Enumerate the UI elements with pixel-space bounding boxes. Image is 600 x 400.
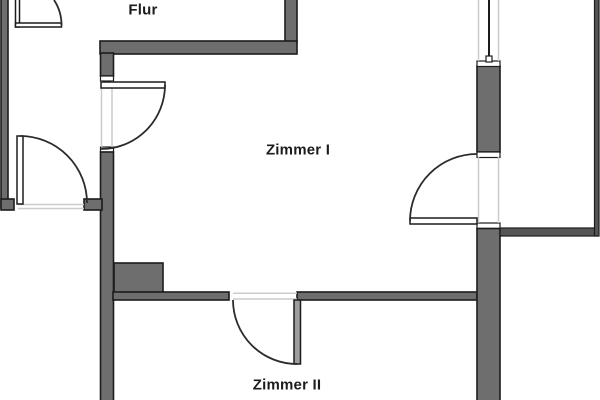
window-top-right [479, 0, 499, 62]
wall-cap [101, 76, 114, 81]
right-exterior-wall [477, 61, 500, 400]
floor-plan-drawing [0, 0, 600, 400]
door-leaf [410, 218, 477, 224]
room-label-zimmer-2: Zimmer II [253, 377, 322, 394]
balcony-right-wall [595, 0, 600, 236]
door-leaf [294, 300, 301, 364]
door-swing-arc [410, 154, 477, 221]
opening-zimmer2 [233, 293, 297, 299]
door-swing-arc [54, 0, 62, 25]
door-leaf [101, 82, 165, 88]
door-left-room [17, 136, 87, 204]
wall-segment [1, 0, 8, 208]
wall-segment [100, 41, 297, 54]
room-label-zimmer-1: Zimmer I [266, 142, 330, 159]
door-zimmer1 [410, 154, 477, 224]
balcony-bottom-wall [500, 228, 598, 236]
wall-segment [114, 263, 163, 293]
opening-left-bottom [18, 205, 84, 209]
door-swing-arc [101, 85, 165, 149]
door-zimmer2 [233, 300, 301, 364]
opening-zimmer1 [479, 157, 499, 223]
door-opening-lines [18, 81, 499, 299]
wall-cap [477, 152, 500, 158]
opening-flur [102, 81, 113, 147]
wall-segment [101, 53, 114, 76]
floor-plan: Flur Zimmer I Zimmer II [0, 0, 600, 400]
left-exterior-wall [1, 0, 14, 210]
wall-segment [477, 66, 500, 152]
room-label-flur: Flur [128, 2, 157, 19]
door-swing-arc [20, 136, 87, 203]
window-handle [486, 56, 492, 62]
wall-segment [297, 292, 477, 300]
wall-end-jamb [1, 199, 14, 210]
balcony-walls [500, 0, 599, 236]
door-leaf [16, 23, 62, 27]
door-swing-arc [233, 300, 297, 364]
door-flur [101, 82, 165, 149]
door-leaf [17, 136, 23, 204]
door-top-left [16, 0, 62, 27]
wall-segment [285, 0, 297, 43]
wall-segment [101, 152, 114, 400]
pillar-block [114, 263, 163, 293]
wall-cap [477, 223, 500, 229]
wall-segment [113, 292, 229, 300]
wall-segment [477, 229, 500, 400]
